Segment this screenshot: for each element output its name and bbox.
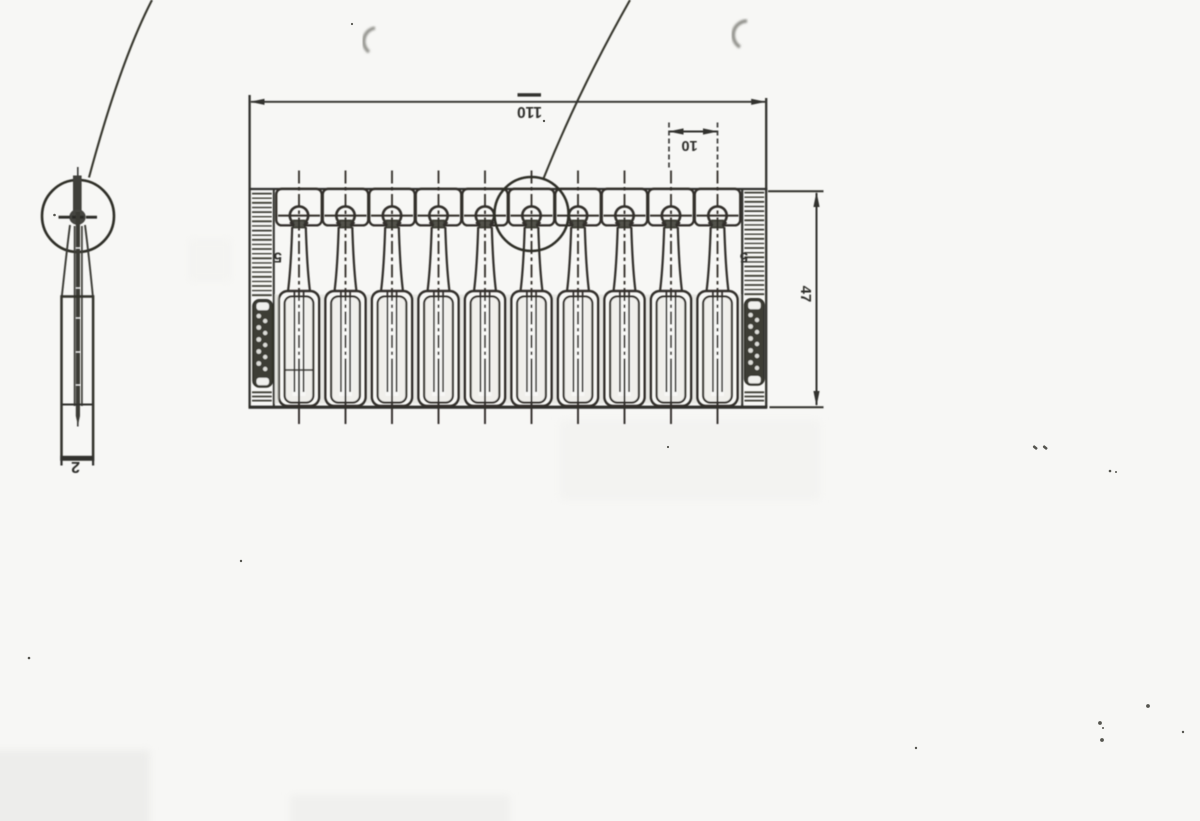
- svg-text:10: 10: [681, 137, 697, 153]
- svg-text:110: 110: [517, 103, 542, 120]
- svg-text:5: 5: [274, 249, 282, 266]
- svg-text:2: 2: [71, 458, 80, 475]
- svg-text:5: 5: [740, 249, 748, 266]
- svg-text:47: 47: [797, 286, 814, 303]
